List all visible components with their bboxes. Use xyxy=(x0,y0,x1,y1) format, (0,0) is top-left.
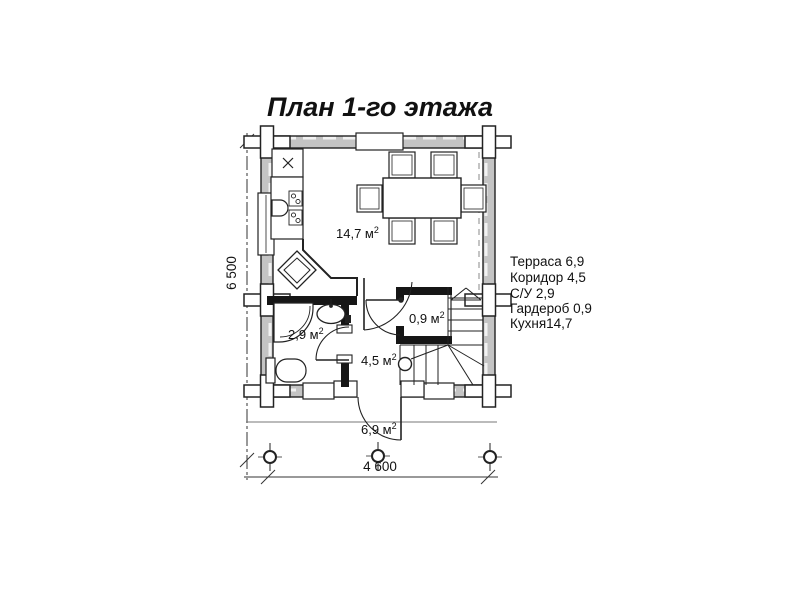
terrace-post xyxy=(478,443,502,471)
entrance-opening xyxy=(357,383,401,400)
log-joint xyxy=(465,375,511,407)
entrance-door-post xyxy=(401,381,424,397)
chair xyxy=(357,185,382,212)
dining-table xyxy=(383,178,461,218)
bathroom-area-label: 2,9 м2 xyxy=(288,326,324,342)
winder-tread xyxy=(411,345,448,359)
legend-item-corridor: Коридор 4,5 xyxy=(510,270,586,285)
floor-plan-screenshot: План 1-го этажа Терраса 6,9 Коридор 4,5 … xyxy=(0,0,800,600)
legend-item-wardrobe: Гардероб 0,9 xyxy=(510,301,592,316)
dimension-height-label: 6 500 xyxy=(224,256,239,290)
chair xyxy=(389,218,415,244)
chair xyxy=(461,185,486,212)
wall-wardrobe-bottom xyxy=(396,336,452,344)
chair xyxy=(431,152,457,178)
chair xyxy=(431,218,457,244)
counter-basin xyxy=(272,200,288,216)
wall-bathroom-right-lower xyxy=(341,361,349,387)
floor-plan-drawing: План 1-го этажа Терраса 6,9 Коридор 4,5 … xyxy=(0,0,800,600)
winder-tread xyxy=(448,345,473,385)
toilet-bowl xyxy=(276,359,306,382)
window-bottom-right xyxy=(424,383,454,399)
winder-tread xyxy=(448,345,484,366)
kitchen-area-label: 14,7 м2 xyxy=(336,225,379,241)
toilet-icon xyxy=(266,358,306,383)
log-joint xyxy=(465,126,511,158)
wall-wardrobe-top xyxy=(396,287,452,295)
bathroom-door-post xyxy=(337,355,352,363)
page-title: План 1-го этажа xyxy=(267,92,493,122)
room-labels: 14,7 м2 2,9 м2 0,9 м2 4,5 м2 6,9 м2 xyxy=(288,225,445,437)
toilet-cistern xyxy=(266,358,275,383)
kitchen-door xyxy=(364,278,412,330)
terrace-area-label: 6,9 м2 xyxy=(361,421,397,437)
legend-item-terrace: Терраса 6,9 xyxy=(510,254,584,269)
wardrobe-area-label: 0,9 м2 xyxy=(409,310,445,326)
legend-item-bathroom: С/У 2,9 xyxy=(510,286,555,301)
window-top xyxy=(356,133,403,150)
window-bottom-left xyxy=(303,383,334,399)
legend-item-kitchen: Кухня14,7 xyxy=(510,316,572,331)
door-posts xyxy=(337,325,352,363)
terrace-post xyxy=(258,443,282,471)
dimension-width-label: 4 600 xyxy=(363,459,397,474)
bathroom-door-post xyxy=(337,325,352,333)
stair-newel-post xyxy=(399,358,412,371)
wall-right xyxy=(483,136,495,397)
chair xyxy=(389,152,415,178)
kitchen-counter xyxy=(271,149,303,239)
legend: Терраса 6,9 Коридор 4,5 С/У 2,9 Гардероб… xyxy=(510,254,592,331)
corridor-area-label: 4,5 м2 xyxy=(361,352,397,368)
